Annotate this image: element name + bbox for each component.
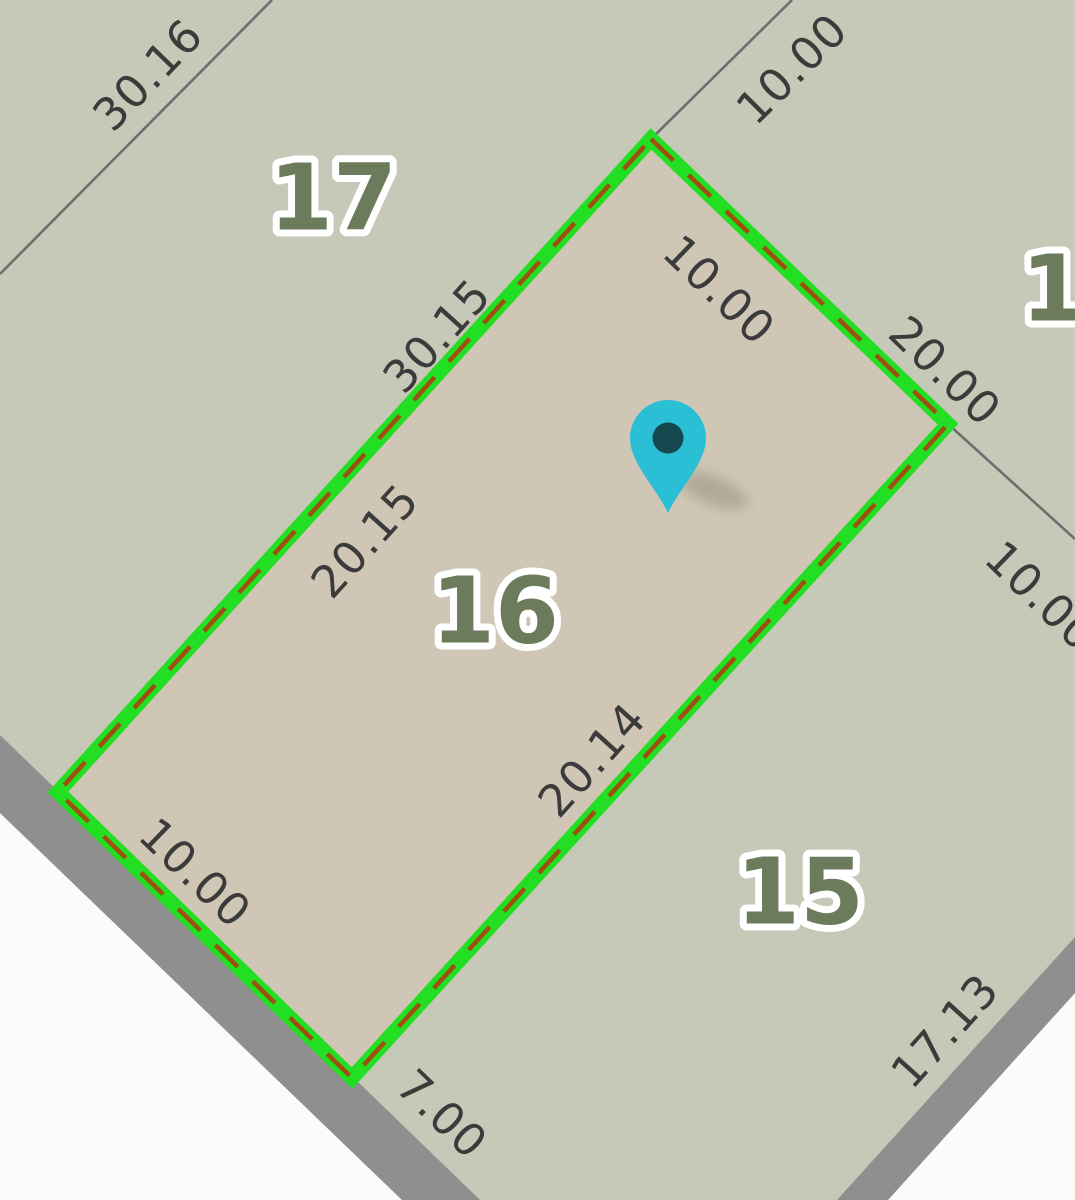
map-viewport[interactable]: 30.16 10.00 30.15 10.00 20.00 10.00 20.1… bbox=[0, 0, 1075, 1200]
parcel-label-16[interactable]: 16 bbox=[431, 558, 559, 665]
parcel-label-ne-partial[interactable]: 1 bbox=[1021, 236, 1075, 343]
pin-center-dot bbox=[653, 423, 684, 454]
parcel-label-15[interactable]: 15 bbox=[736, 839, 864, 946]
parcel-label-17[interactable]: 17 bbox=[269, 145, 397, 252]
cadastral-map[interactable]: 30.16 10.00 30.15 10.00 20.00 10.00 20.1… bbox=[0, 0, 1075, 1200]
